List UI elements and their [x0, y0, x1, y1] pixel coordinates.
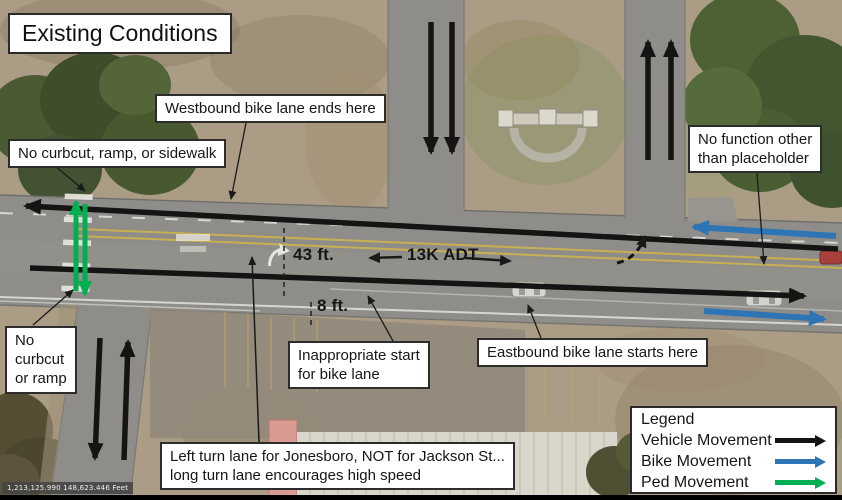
- legend-label-ped: Ped Movement: [641, 474, 749, 492]
- callout-westbound-bike-ends: Westbound bike lane ends here: [155, 94, 386, 123]
- callout-no-curbcut-sidewalk: No curbcut, ramp, or sidewalk: [8, 139, 226, 168]
- bike-lane-width-label: 8 ft.: [317, 296, 348, 316]
- leader-inappropriate-start: [368, 296, 393, 341]
- legend-row-bike: Bike Movement: [641, 451, 826, 472]
- callout-no-function: No function other than placeholder: [688, 125, 822, 173]
- adt-arrow-left: [370, 257, 402, 258]
- gis-coordinate-readout: 1,213,125.990 148,623.446 Feet: [2, 482, 133, 494]
- leader-no-curbcut-ramp: [33, 290, 73, 325]
- legend-title: Legend: [641, 411, 826, 429]
- road-width-label: 43 ft.: [293, 245, 334, 265]
- leader-left-turn-note: [252, 257, 259, 442]
- traffic-volume-label: 13K ADT: [407, 245, 479, 265]
- legend-label-vehicle: Vehicle Movement: [641, 432, 772, 450]
- leader-no-function: [757, 173, 764, 264]
- leader-westbound-bike-ends: [231, 123, 246, 199]
- ped-arrow-icon: [775, 477, 826, 489]
- callout-inappropriate-start: Inappropriate start for bike lane: [288, 341, 430, 389]
- legend-row-ped: Ped Movement: [641, 472, 826, 493]
- bike-arrow-eastbound: [704, 311, 824, 319]
- bottom-border-bar: [0, 495, 842, 500]
- legend-label-bike: Bike Movement: [641, 453, 751, 471]
- legend-row-vehicle: Vehicle Movement: [641, 430, 826, 451]
- callout-left-turn-note: Left turn lane for Jonesboro, NOT for Ja…: [160, 442, 515, 490]
- vehicle-arrow-icon: [775, 435, 826, 447]
- callout-no-curbcut-ramp: No curbcut or ramp: [5, 326, 77, 394]
- legend: Legend Vehicle Movement Bike Movement Pe…: [630, 406, 837, 494]
- vehicle-arrow-eastbound: [30, 268, 804, 296]
- leader-no-curbcut-sidewalk: [55, 166, 85, 191]
- annotated-aerial-map: Existing Conditions Westbound bike lane …: [0, 0, 842, 500]
- leader-eastbound-bike-starts: [528, 305, 541, 338]
- vehicle-arrow-south-leg-up: [124, 342, 128, 460]
- callout-eastbound-bike-starts: Eastbound bike lane starts here: [477, 338, 708, 367]
- page-title: Existing Conditions: [8, 13, 232, 54]
- bike-arrow-westbound: [694, 227, 836, 236]
- bike-arrow-icon: [775, 456, 826, 468]
- vehicle-arrow-south-leg-down: [95, 338, 100, 458]
